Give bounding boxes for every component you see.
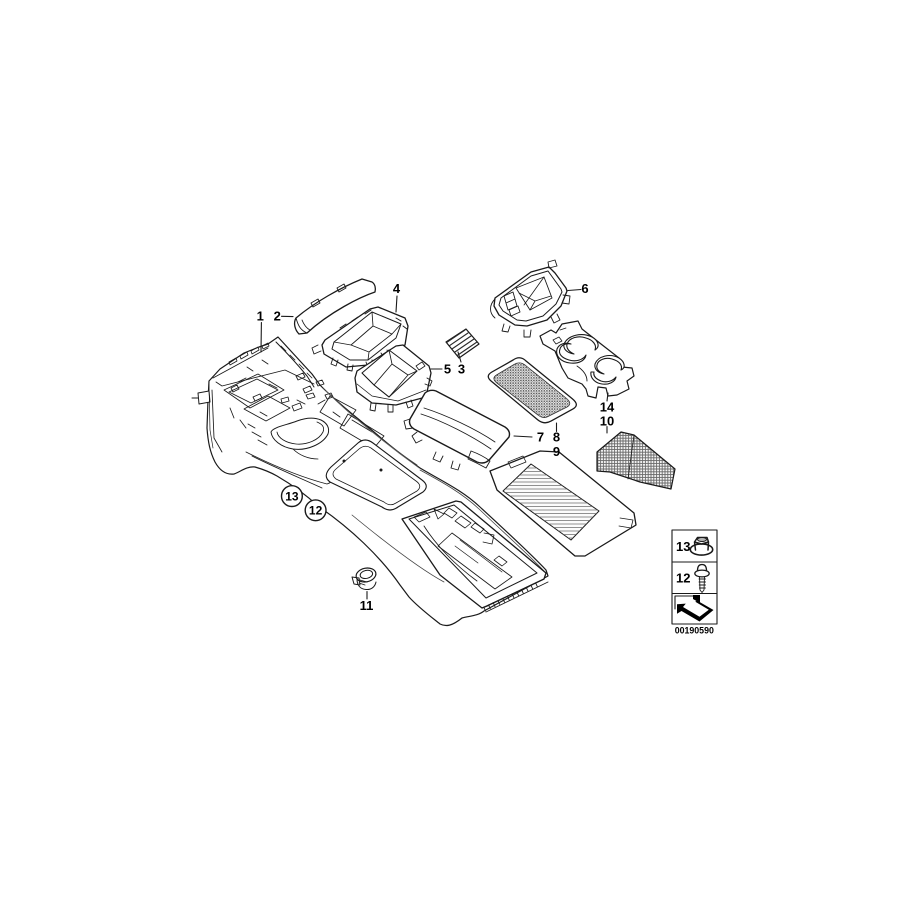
svg-text:12: 12: [676, 571, 690, 586]
svg-text:13: 13: [285, 490, 299, 504]
svg-text:3: 3: [458, 362, 465, 377]
svg-text:8: 8: [553, 430, 560, 445]
svg-text:7: 7: [537, 430, 544, 445]
svg-text:6: 6: [581, 281, 588, 296]
svg-text:5: 5: [444, 362, 451, 377]
svg-text:12: 12: [309, 504, 323, 518]
svg-text:1: 1: [257, 308, 264, 323]
svg-text:11: 11: [360, 598, 374, 613]
svg-text:4: 4: [393, 281, 401, 296]
svg-text:10: 10: [600, 413, 614, 428]
svg-text:14: 14: [600, 400, 615, 415]
svg-text:9: 9: [553, 444, 560, 459]
svg-text:2: 2: [274, 308, 281, 323]
svg-text:13: 13: [676, 539, 690, 554]
svg-text:00190590: 00190590: [675, 626, 714, 636]
